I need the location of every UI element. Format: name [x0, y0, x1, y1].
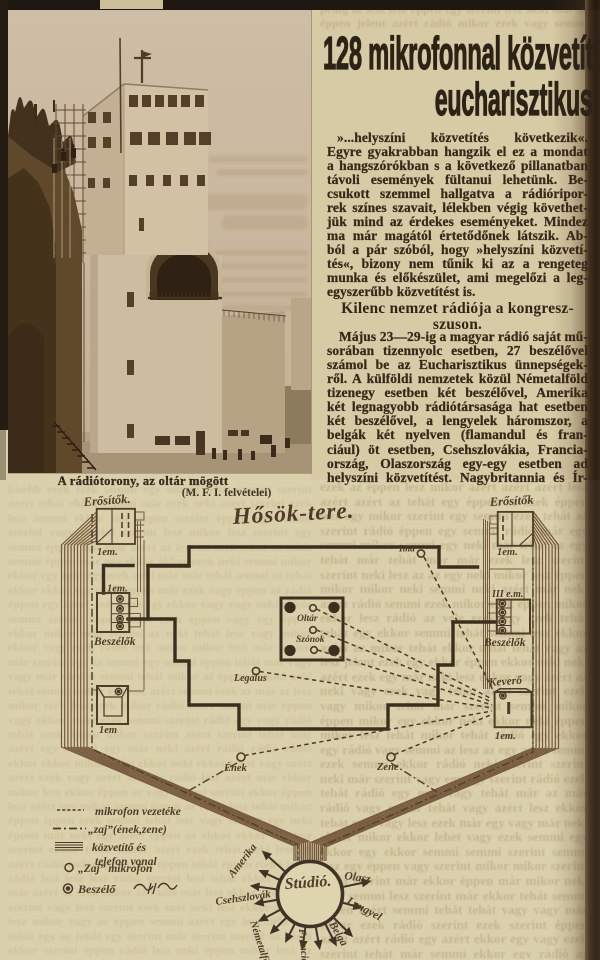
svg-text:Zene: Zene: [376, 762, 399, 773]
svg-text:„zaj”(ének,zene): „zaj”(ének,zene): [88, 824, 167, 836]
svg-text:Beszélő: Beszélő: [77, 882, 116, 896]
svg-text:„Zaj” mikrofon: „Zaj” mikrofon: [78, 863, 152, 875]
svg-text:Beszélők: Beszélők: [483, 637, 526, 649]
svg-text:Németalföld: Németalföld: [247, 919, 274, 960]
svg-text:1em.: 1em.: [497, 547, 518, 558]
svg-text:III e.m.: III e.m.: [491, 589, 523, 600]
svg-text:1em.: 1em.: [107, 584, 128, 595]
svg-text:Beszélők: Beszélők: [93, 636, 136, 648]
svg-text:Erősítők.: Erősítők.: [82, 492, 131, 509]
svg-text:Francia: Francia: [296, 927, 310, 960]
svg-text:Szónok: Szónok: [296, 635, 325, 645]
svg-text:Legálus: Legálus: [233, 673, 267, 684]
svg-text:Hősök-tere.: Hősök-tere.: [231, 498, 355, 530]
svg-text:Olasz: Olasz: [344, 870, 372, 886]
svg-text:Lengyel: Lengyel: [344, 895, 384, 924]
svg-text:mikrofon vezetéke: mikrofon vezetéke: [95, 806, 181, 818]
svg-text:Keverő: Keverő: [487, 675, 523, 689]
svg-text:Ima: Ima: [398, 545, 415, 555]
svg-text:Ének: Ének: [223, 762, 248, 774]
svg-text:közvetítő és: közvetítő és: [92, 842, 146, 854]
svg-text:Amerika: Amerika: [225, 841, 259, 880]
svg-text:1em.: 1em.: [97, 547, 118, 558]
svg-text:1em.: 1em.: [495, 731, 516, 742]
svg-text:1em: 1em: [99, 725, 117, 736]
svg-text:Oltár: Oltár: [297, 614, 318, 624]
svg-text:Stúdió.: Stúdió.: [284, 873, 332, 893]
svg-text:Erősítők: Erősítők: [488, 493, 534, 509]
